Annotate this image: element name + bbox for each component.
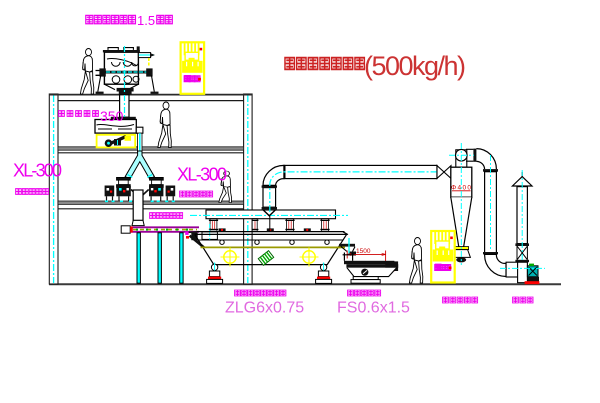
svg-text:FS0.6x1.5: FS0.6x1.5: [337, 300, 410, 317]
svg-text:(500kg/h): (500kg/h): [364, 51, 466, 81]
svg-text:1500: 1500: [356, 248, 371, 255]
svg-text:XL-300: XL-300: [177, 165, 227, 185]
svg-text:ZLG6x0.75: ZLG6x0.75: [225, 300, 304, 317]
svg-text:XL-300: XL-300: [13, 161, 62, 181]
svg-text:350: 350: [100, 108, 124, 124]
svg-text:1.5: 1.5: [137, 13, 155, 28]
